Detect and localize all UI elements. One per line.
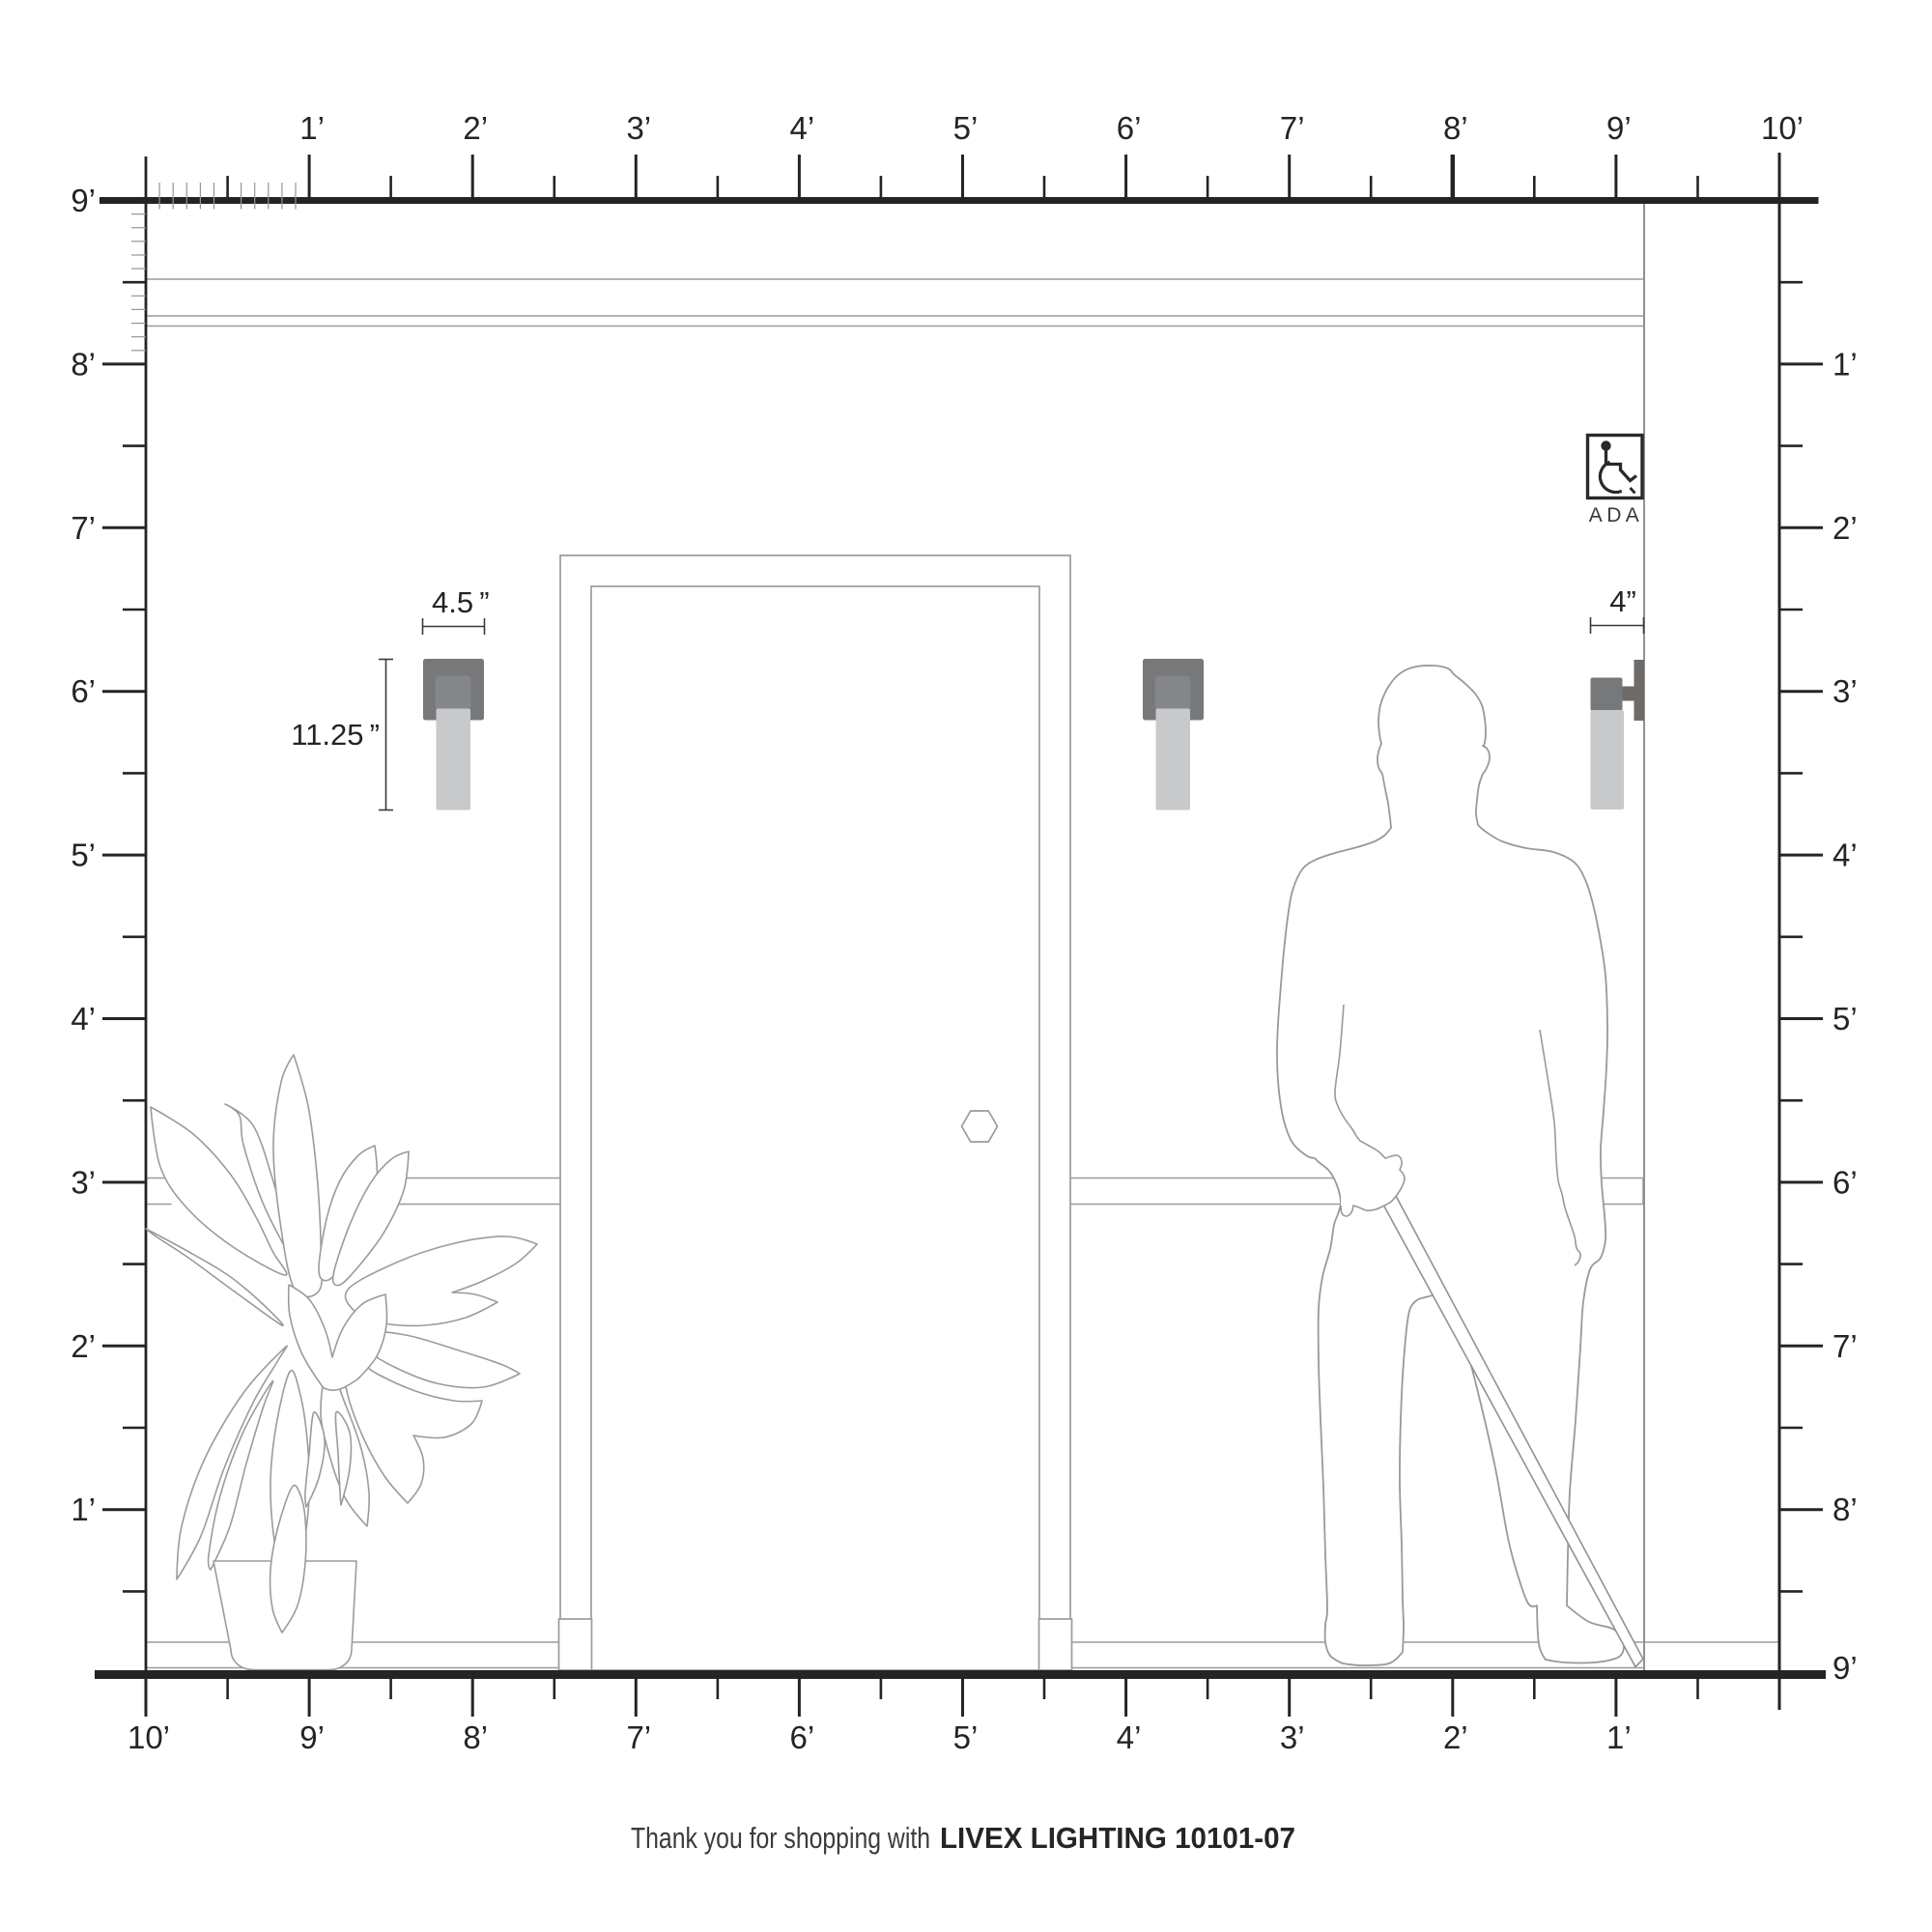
svg-text:3’: 3’ — [71, 1164, 96, 1200]
svg-text:Thank you for shopping with: Thank you for shopping with — [631, 1821, 930, 1855]
svg-text:5’: 5’ — [71, 838, 96, 873]
svg-text:ADA: ADA — [1589, 504, 1643, 526]
svg-text:7’: 7’ — [71, 510, 96, 546]
svg-text:10’: 10’ — [1761, 110, 1804, 146]
svg-text:LIVEX LIGHTING 10101-07: LIVEX LIGHTING 10101-07 — [940, 1821, 1295, 1855]
svg-text:8’: 8’ — [463, 1719, 488, 1755]
svg-text:6’: 6’ — [1117, 110, 1142, 146]
svg-text:3’: 3’ — [626, 110, 651, 146]
svg-text:6’: 6’ — [1833, 1164, 1858, 1200]
svg-text:5’: 5’ — [953, 110, 979, 146]
svg-text:4’: 4’ — [71, 1001, 96, 1037]
svg-text:1’: 1’ — [1606, 1719, 1632, 1755]
svg-text:5’: 5’ — [1833, 1001, 1858, 1037]
svg-text:4”: 4” — [1609, 584, 1636, 618]
svg-text:4’: 4’ — [1833, 838, 1858, 873]
svg-text:3’: 3’ — [1280, 1719, 1305, 1755]
svg-text:4’: 4’ — [790, 110, 815, 146]
svg-text:8’: 8’ — [1443, 110, 1468, 146]
svg-text:1’: 1’ — [299, 110, 325, 146]
svg-text:8’: 8’ — [71, 346, 96, 382]
svg-text:4’: 4’ — [1117, 1719, 1142, 1755]
svg-text:4.5 ”: 4.5 ” — [432, 585, 490, 619]
svg-text:2’: 2’ — [463, 110, 488, 146]
svg-text:6’: 6’ — [790, 1719, 815, 1755]
svg-text:3’: 3’ — [1833, 673, 1858, 709]
svg-text:1’: 1’ — [71, 1492, 96, 1527]
svg-text:9’: 9’ — [71, 183, 96, 218]
svg-text:8’: 8’ — [1833, 1492, 1858, 1527]
svg-text:9’: 9’ — [1833, 1650, 1858, 1686]
svg-text:11.25 ”: 11.25 ” — [291, 718, 380, 752]
svg-text:2’: 2’ — [1833, 510, 1858, 546]
svg-text:9’: 9’ — [1606, 110, 1632, 146]
svg-text:2’: 2’ — [1443, 1719, 1468, 1755]
svg-text:2’: 2’ — [71, 1328, 96, 1364]
svg-text:6’: 6’ — [71, 673, 96, 709]
svg-text:10’: 10’ — [128, 1719, 170, 1755]
svg-text:7’: 7’ — [626, 1719, 651, 1755]
svg-text:5’: 5’ — [953, 1719, 979, 1755]
svg-text:7’: 7’ — [1280, 110, 1305, 146]
svg-text:7’: 7’ — [1833, 1328, 1858, 1364]
svg-text:9’: 9’ — [299, 1719, 325, 1755]
svg-text:1’: 1’ — [1833, 346, 1858, 382]
